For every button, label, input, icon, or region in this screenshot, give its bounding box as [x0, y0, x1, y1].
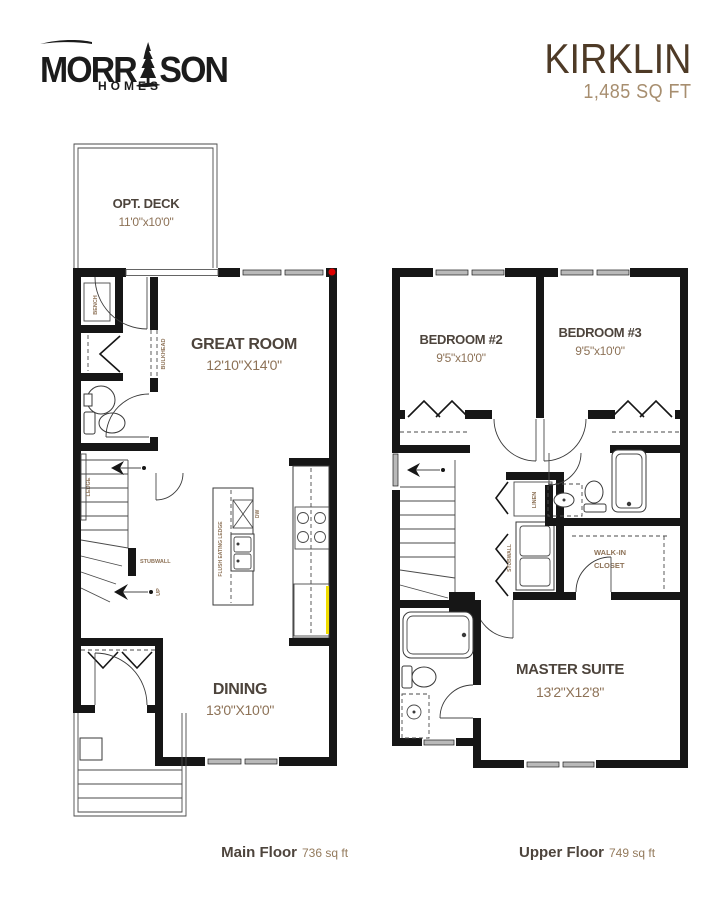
plan-name: KIRKLIN	[544, 38, 691, 80]
ensuite-shower	[402, 694, 429, 738]
plan-total-sqft: 1,485 SQ FT	[544, 81, 691, 104]
powder-room	[73, 386, 155, 451]
bulkhead-wall: BULKHEAD	[150, 277, 167, 451]
up-label: UP	[156, 588, 162, 596]
bedroom3-name: BEDROOM #3	[559, 325, 642, 340]
linen-label: LINEN	[532, 492, 538, 509]
stubwall-label-main: STUBWALL	[140, 559, 171, 565]
deck-name: OPT. DECK	[113, 196, 181, 211]
deck-dims: 11'0"x10'0"	[119, 215, 174, 229]
dining-label: DINING 13'0"X10'0"	[206, 681, 274, 718]
master-suite-label: MASTER SUITE 13'2"X12'8"	[516, 661, 624, 700]
walk-in-label-2: CLOSET	[594, 561, 625, 570]
bedroom3-label: BEDROOM #3 9'5"x10'0"	[559, 325, 642, 358]
upper-floor-caption: Upper Floor	[519, 844, 604, 861]
main-floor-plan: OPT. DECK 11'0"x10'0" B	[73, 144, 337, 816]
great-room-dims: 12'10"X14'0"	[206, 357, 282, 373]
dining-closet	[73, 638, 155, 668]
upper-floor-plan: LINEN STUBWALL	[392, 268, 688, 768]
ensuite-toilet-bowl	[412, 667, 436, 687]
powder-toilet-tank	[84, 412, 95, 434]
entry-bench-closet: BENCH	[73, 277, 147, 333]
laundry-stack: STUBWALL	[496, 522, 554, 596]
morrison-homes-logo: MORR SON HOMES	[40, 38, 239, 93]
walk-in-closet: WALK-IN CLOSET	[572, 536, 668, 592]
floor-captions: Main Floor 736 sq ft Upper Floor 749 sq …	[221, 844, 656, 861]
floor-plan-canvas: OPT. DECK 11'0"x10'0" B	[0, 0, 719, 906]
optional-deck: OPT. DECK 11'0"x10'0"	[74, 144, 217, 268]
floorplan-sheet: { "header": { "logo_part1": "MORR", "log…	[0, 0, 719, 906]
main-floor-caption: Main Floor	[221, 844, 297, 861]
flush-eating-ledge-label: FLUSH EATING LEDGE	[218, 521, 224, 577]
kitchen-island: FLUSH EATING LEDGE DW	[213, 488, 261, 605]
ensuite-toilet-tank	[402, 666, 412, 688]
master-dims: 13'2"X12'8"	[536, 684, 604, 700]
bathroom-main	[545, 450, 688, 526]
hall-walls	[449, 592, 688, 638]
yellow-accent	[326, 586, 329, 634]
pine-tree-icon	[136, 42, 160, 90]
upper-floor-sqft: 749 sq ft	[609, 846, 656, 860]
powder-toilet-bowl	[99, 413, 125, 433]
bench-label: BENCH	[93, 295, 99, 315]
bedroom3-dims: 9'5"x10'0"	[575, 344, 625, 358]
kitchen-sink	[231, 534, 254, 571]
ledge-label: LEDGE	[86, 477, 92, 496]
bath-toilet-bowl	[585, 481, 603, 503]
red-corner-marker	[329, 269, 336, 276]
dw-label: DW	[255, 510, 261, 519]
plan-title-block: KIRKLIN 1,485 SQ FT	[544, 38, 691, 104]
bath-toilet-tank	[584, 504, 606, 512]
logo-text-right: SON	[159, 54, 227, 86]
bedroom2-label: BEDROOM #2 9'5"x10'0"	[420, 332, 503, 365]
stairs-main: LEDGE STUBWALL UP	[81, 454, 183, 602]
logo-text-left: MORR	[40, 54, 136, 86]
great-room-name: GREAT ROOM	[191, 336, 297, 353]
bulkhead-label: BULKHEAD	[161, 339, 167, 370]
master-name: MASTER SUITE	[516, 661, 624, 678]
main-floor-sqft: 736 sq ft	[302, 846, 349, 860]
front-door	[95, 653, 147, 705]
porch-post	[80, 738, 102, 760]
dining-name: DINING	[213, 681, 267, 698]
sheet-header: MORR SON HOMES KIRKLIN 1,485 SQ FT	[40, 38, 691, 104]
great-room-label: GREAT ROOM 12'10"X14'0"	[191, 336, 297, 373]
stubwall-label-upper: STUBWALL	[507, 544, 513, 572]
bedroom2-dims: 9'5"x10'0"	[436, 351, 486, 365]
bedroom2-name: BEDROOM #2	[420, 332, 503, 347]
dining-dims: 13'0"X10'0"	[206, 702, 274, 718]
walk-in-label-1: WALK-IN	[594, 548, 626, 557]
logo-ground-swoosh	[40, 38, 92, 46]
